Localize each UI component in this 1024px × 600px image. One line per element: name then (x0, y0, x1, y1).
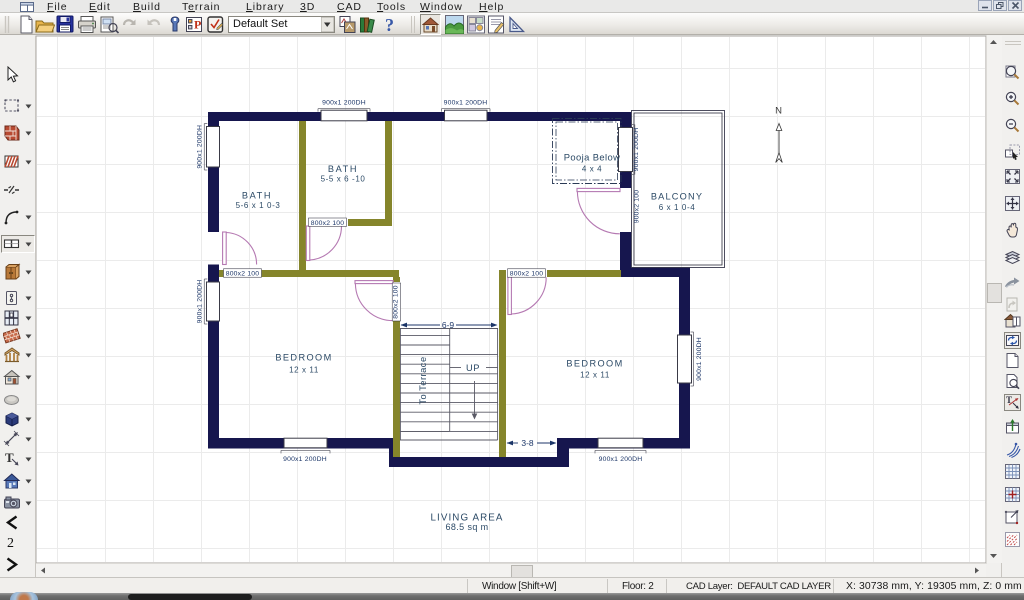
svg-text:6-9: 6-9 (442, 320, 455, 330)
svg-text:BATH: BATH (242, 191, 272, 201)
svg-text:12 x 11: 12 x 11 (289, 366, 319, 375)
svg-text:To Terrace: To Terrace (418, 356, 428, 404)
svg-text:900x1 200DH: 900x1 200DH (197, 125, 204, 169)
svg-text:6 x 1 0-4: 6 x 1 0-4 (659, 203, 696, 212)
svg-text:N: N (775, 106, 782, 117)
svg-text:Pooja Below: Pooja Below (564, 152, 621, 163)
svg-text:900x2 100: 900x2 100 (634, 190, 641, 224)
svg-text:P: P (194, 18, 201, 32)
svg-text:900x1 200DH: 900x1 200DH (283, 456, 327, 463)
svg-text:900x1 200DH: 900x1 200DH (322, 100, 366, 107)
svg-text:5-6 x 1 0-3: 5-6 x 1 0-3 (236, 201, 281, 210)
svg-text:68.5 sq m: 68.5 sq m (445, 522, 488, 532)
svg-text:T: T (5, 450, 14, 465)
svg-text:5-5 x 6 -10: 5-5 x 6 -10 (321, 175, 366, 184)
svg-text:BEDROOM: BEDROOM (566, 359, 623, 369)
svg-text:3-8: 3-8 (521, 438, 534, 448)
svg-text:BALCONY: BALCONY (651, 192, 703, 202)
svg-text:900x1 200DH: 900x1 200DH (696, 337, 703, 381)
svg-text:4 x 4: 4 x 4 (582, 165, 602, 174)
svg-text:BEDROOM: BEDROOM (275, 353, 332, 363)
svg-text:900x1 200DH: 900x1 200DH (599, 456, 643, 463)
svg-text:800x2 100: 800x2 100 (392, 285, 399, 319)
svg-text:900x1 200DH: 900x1 200DH (197, 280, 204, 324)
svg-text:12 x 11: 12 x 11 (580, 371, 610, 380)
svg-text:?: ? (385, 15, 394, 34)
svg-text:900x1 200DH: 900x1 200DH (444, 100, 488, 107)
svg-text:UP: UP (466, 363, 480, 373)
svg-text:800x2 100: 800x2 100 (311, 220, 345, 227)
svg-text:BATH: BATH (328, 164, 358, 174)
svg-text:800x2 100: 800x2 100 (226, 271, 260, 278)
svg-text:800x2 100: 800x2 100 (510, 271, 544, 278)
svg-text:900x1 200DH: 900x1 200DH (633, 128, 640, 172)
